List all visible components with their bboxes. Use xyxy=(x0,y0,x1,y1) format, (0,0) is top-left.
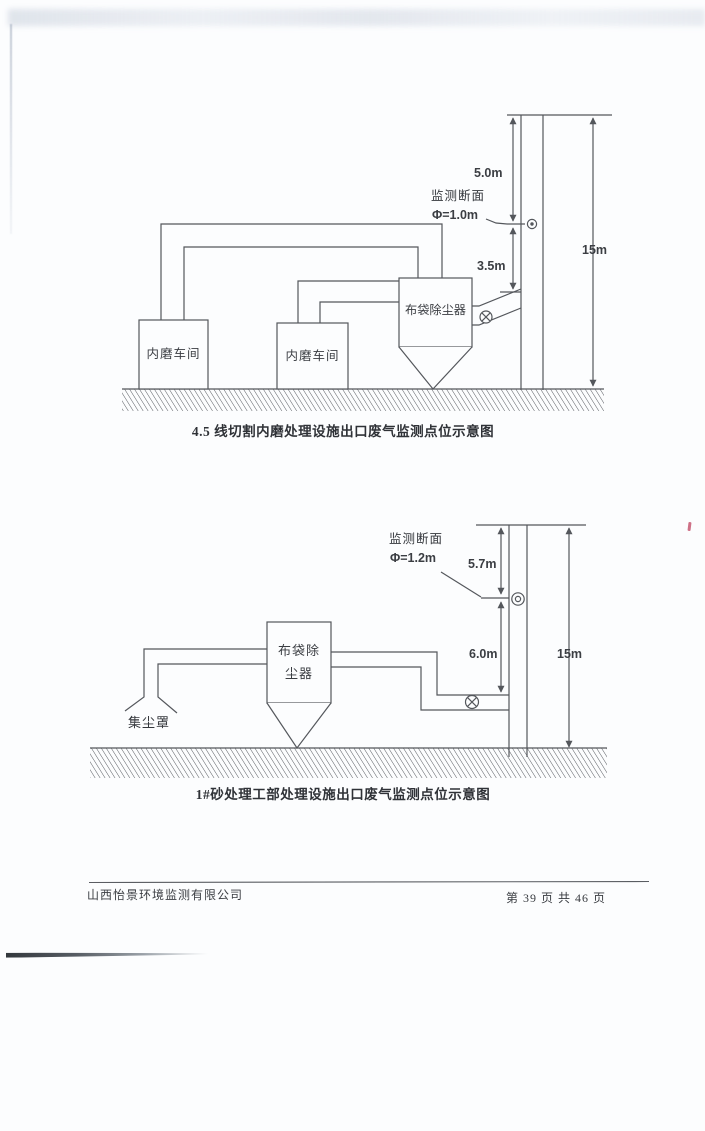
outlet-duct-lower-2 xyxy=(331,667,509,710)
leader-line-2 xyxy=(441,572,481,597)
dimension-label-5.7m: 5.7m xyxy=(468,557,497,573)
valve-icon xyxy=(480,311,492,323)
outlet-duct-lower-1 xyxy=(472,308,521,325)
scanned-document-page: 5.0m 监测断面 Φ=1.0m 3.5m 15m 内磨车间 内磨车间 布袋除尘… xyxy=(0,0,705,1131)
duct2-inner-wall xyxy=(320,302,399,323)
valve-icon xyxy=(466,696,479,709)
diagram1-linework xyxy=(122,115,612,411)
diagram2-linework xyxy=(90,525,607,778)
stack-height-label-1: 15m xyxy=(582,243,607,259)
ground-surface-2 xyxy=(90,748,607,778)
ground-surface-1 xyxy=(122,389,604,411)
dust-collector-2-label-line2: 尘器 xyxy=(267,663,331,682)
footer-company-name: 山西怡景环境监测有限公司 xyxy=(87,886,243,903)
diagram1-caption: 4.5 线切割内磨处理设施出口废气监测点位示意图 xyxy=(103,420,583,440)
leader-line-1 xyxy=(486,219,507,224)
footer-page-number: 第 39 页 共 46 页 xyxy=(506,889,606,906)
dust-collector-1-hopper xyxy=(399,347,472,389)
monitoring-port-icon xyxy=(527,219,536,228)
monitor-section-label-1: 监测断面 xyxy=(431,189,485,205)
duct1-inner-wall xyxy=(184,247,418,320)
monitoring-port-icon xyxy=(512,593,524,605)
workshop1-label: 内磨车间 xyxy=(139,343,208,362)
dimension-label-6m: 6.0m xyxy=(469,647,498,663)
dust-hood-label: 集尘罩 xyxy=(128,715,170,731)
dust-collector-2-label-line1: 布袋除 xyxy=(267,640,331,659)
dimension-label-5m: 5.0m xyxy=(474,166,503,182)
dust-collector-2-hopper xyxy=(267,703,331,748)
diameter-label-1: Φ=1.0m xyxy=(432,208,478,224)
stack-height-label-2: 15m xyxy=(557,647,582,663)
monitor-section-label-2: 监测断面 xyxy=(389,532,443,548)
dust-collector-1-label: 布袋除尘器 xyxy=(399,300,472,318)
footer-rule xyxy=(89,882,649,883)
dimension-label-3.5m: 3.5m xyxy=(477,259,506,275)
hood-outer-wall xyxy=(125,649,267,711)
workshop2-label: 内磨车间 xyxy=(277,345,348,364)
diameter-label-2: Φ=1.2m xyxy=(390,551,436,567)
hood-inner-wall xyxy=(158,664,267,713)
diagram2-caption: 1#砂处理工部处理设施出口废气监测点位示意图 xyxy=(103,783,583,803)
diagram-linework-layer xyxy=(0,0,705,1131)
